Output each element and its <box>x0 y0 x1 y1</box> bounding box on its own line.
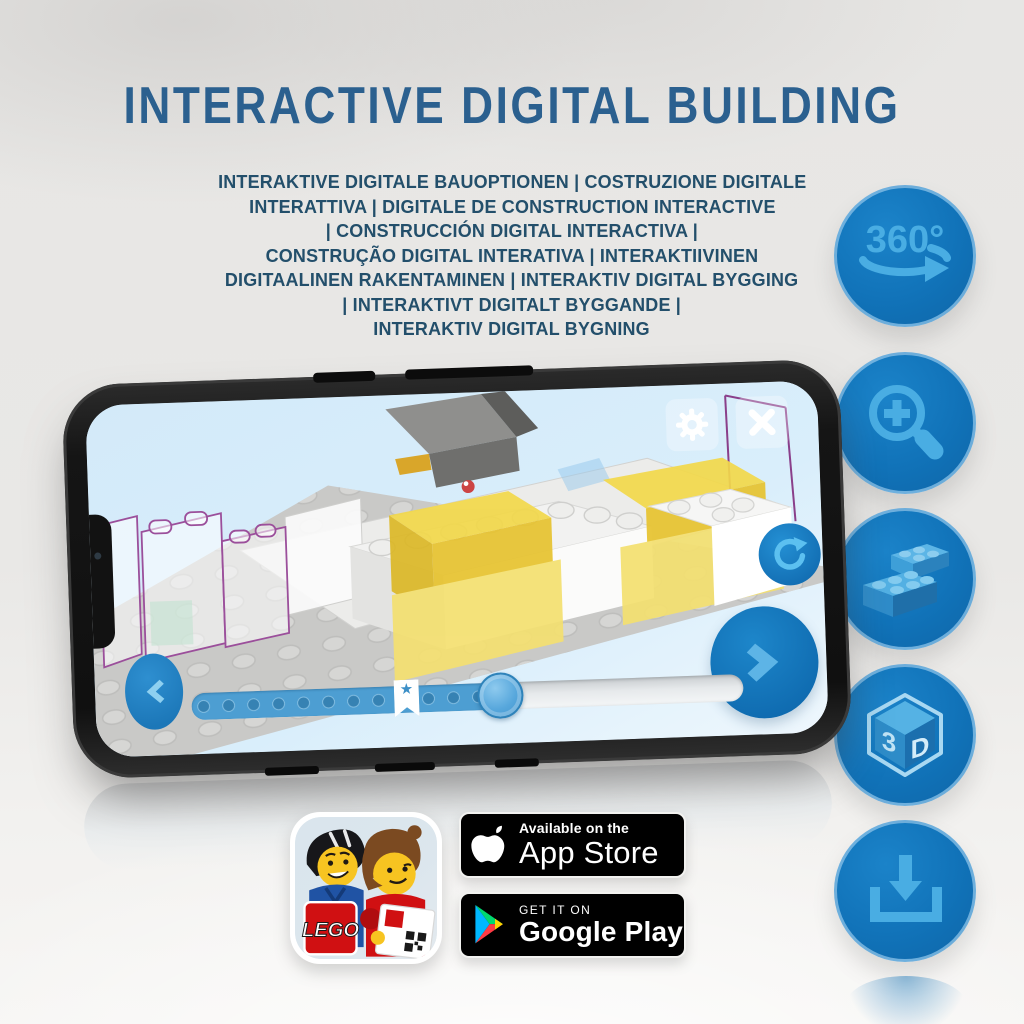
volume-button <box>313 371 375 383</box>
rotate-360-icon: 360° <box>853 208 957 304</box>
app-store-tagline: Available on the <box>519 821 659 836</box>
feature-3d-badge: 3 D <box>834 664 976 806</box>
svg-text:LEGO: LEGO <box>302 920 359 942</box>
phone-notch <box>85 514 115 649</box>
google-play-tagline: GET IT ON <box>519 904 683 917</box>
feature-download-badge <box>834 820 976 962</box>
google-play-badge[interactable]: GET IT ON Google Play <box>459 892 686 958</box>
download-icon <box>859 845 951 937</box>
3d-cube-icon: 3 D <box>859 689 951 781</box>
speaker-slot <box>375 762 435 772</box>
apple-icon <box>461 823 519 867</box>
svg-text:360°: 360° <box>866 219 945 261</box>
phone-body: ★ <box>61 359 852 780</box>
rotate-icon <box>769 534 810 575</box>
lego-marketing-poster: INTERACTIVE DIGITAL BUILDING INTERAKTIVE… <box>0 0 1024 1024</box>
page-title: INTERACTIVE DIGITAL BUILDING <box>0 76 1024 136</box>
gear-icon <box>675 407 710 442</box>
feature-brick-badge <box>834 508 976 650</box>
svg-text:D: D <box>911 730 930 765</box>
app-store-name: App Store <box>519 837 659 870</box>
zoom-in-icon <box>859 377 951 469</box>
lego-app-icon[interactable]: LEGO <box>290 812 442 964</box>
chevron-right-icon <box>737 633 791 691</box>
lego-brick-icon <box>857 533 953 625</box>
lego-app-artwork: LEGO <box>295 817 437 959</box>
feature-zoom-badge <box>834 352 976 494</box>
camera-icon <box>94 552 101 559</box>
google-play-name: Google Play <box>519 917 683 946</box>
google-play-icon <box>461 905 519 945</box>
phone-screen: ★ <box>85 380 829 757</box>
settings-button[interactable] <box>665 398 719 452</box>
subtitle-line: INTERAKTIVE DIGITALE BAUOPTIONEN | COSTR… <box>0 170 1024 195</box>
svg-text:3: 3 <box>882 725 896 759</box>
subtitle-line: INTERAKTIV DIGITAL BYGNING <box>0 317 1024 342</box>
speaker-slot <box>265 766 319 776</box>
app-store-badge[interactable]: Available on the App Store <box>459 812 686 878</box>
feature-360-badge: 360° <box>834 185 976 327</box>
close-icon <box>746 406 779 439</box>
phone-mockup: ★ <box>61 359 852 780</box>
volume-button <box>405 365 533 379</box>
phone-reflection <box>83 759 834 871</box>
speaker-slot <box>495 758 539 768</box>
chevron-left-icon <box>141 676 168 707</box>
close-button[interactable] <box>735 395 789 449</box>
feature-badge-reflection <box>845 976 967 1024</box>
